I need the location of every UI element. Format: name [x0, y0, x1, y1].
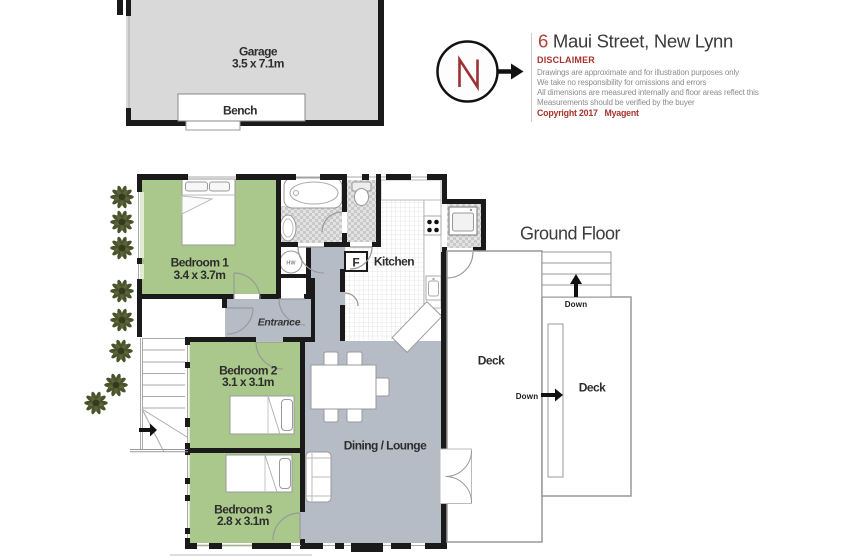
svg-text:Deck: Deck: [579, 381, 606, 395]
svg-text:Down: Down: [516, 392, 539, 401]
svg-text:Kitchen: Kitchen: [374, 255, 414, 269]
svg-text:3.1 x 3.1m: 3.1 x 3.1m: [222, 375, 274, 389]
svg-text:All dimensions are measured in: All dimensions are measured internally a…: [537, 88, 759, 97]
svg-text:Ground Floor: Ground Floor: [520, 224, 621, 244]
svg-text:Down: Down: [565, 300, 588, 309]
svg-text:3.4 x 3.7m: 3.4 x 3.7m: [174, 268, 226, 282]
svg-text:Copyright 2017 Myagent: Copyright 2017 Myagent: [537, 108, 639, 118]
svg-text:DISCLAIMER: DISCLAIMER: [537, 55, 595, 65]
svg-text:Deck: Deck: [478, 354, 505, 368]
svg-text:3.5 x 7.1m: 3.5 x 7.1m: [232, 57, 284, 71]
svg-text:Measurements should be verifie: Measurements should be verified by the b…: [537, 98, 695, 107]
svg-text:2.8 x 3.1m: 2.8 x 3.1m: [217, 514, 269, 528]
svg-text:Dining / Lounge: Dining / Lounge: [344, 439, 427, 453]
svg-text:Bench: Bench: [223, 104, 257, 118]
svg-text:HW: HW: [286, 261, 296, 267]
svg-text:Drawings are approximate and f: Drawings are approximate and for illustr…: [537, 68, 739, 77]
svg-text:Entrance: Entrance: [258, 317, 301, 329]
svg-text:6 Maui Street, New Lynn: 6 Maui Street, New Lynn: [538, 31, 733, 52]
svg-text:We take no responsibility for: We take no responsibility for omissions …: [537, 78, 706, 87]
